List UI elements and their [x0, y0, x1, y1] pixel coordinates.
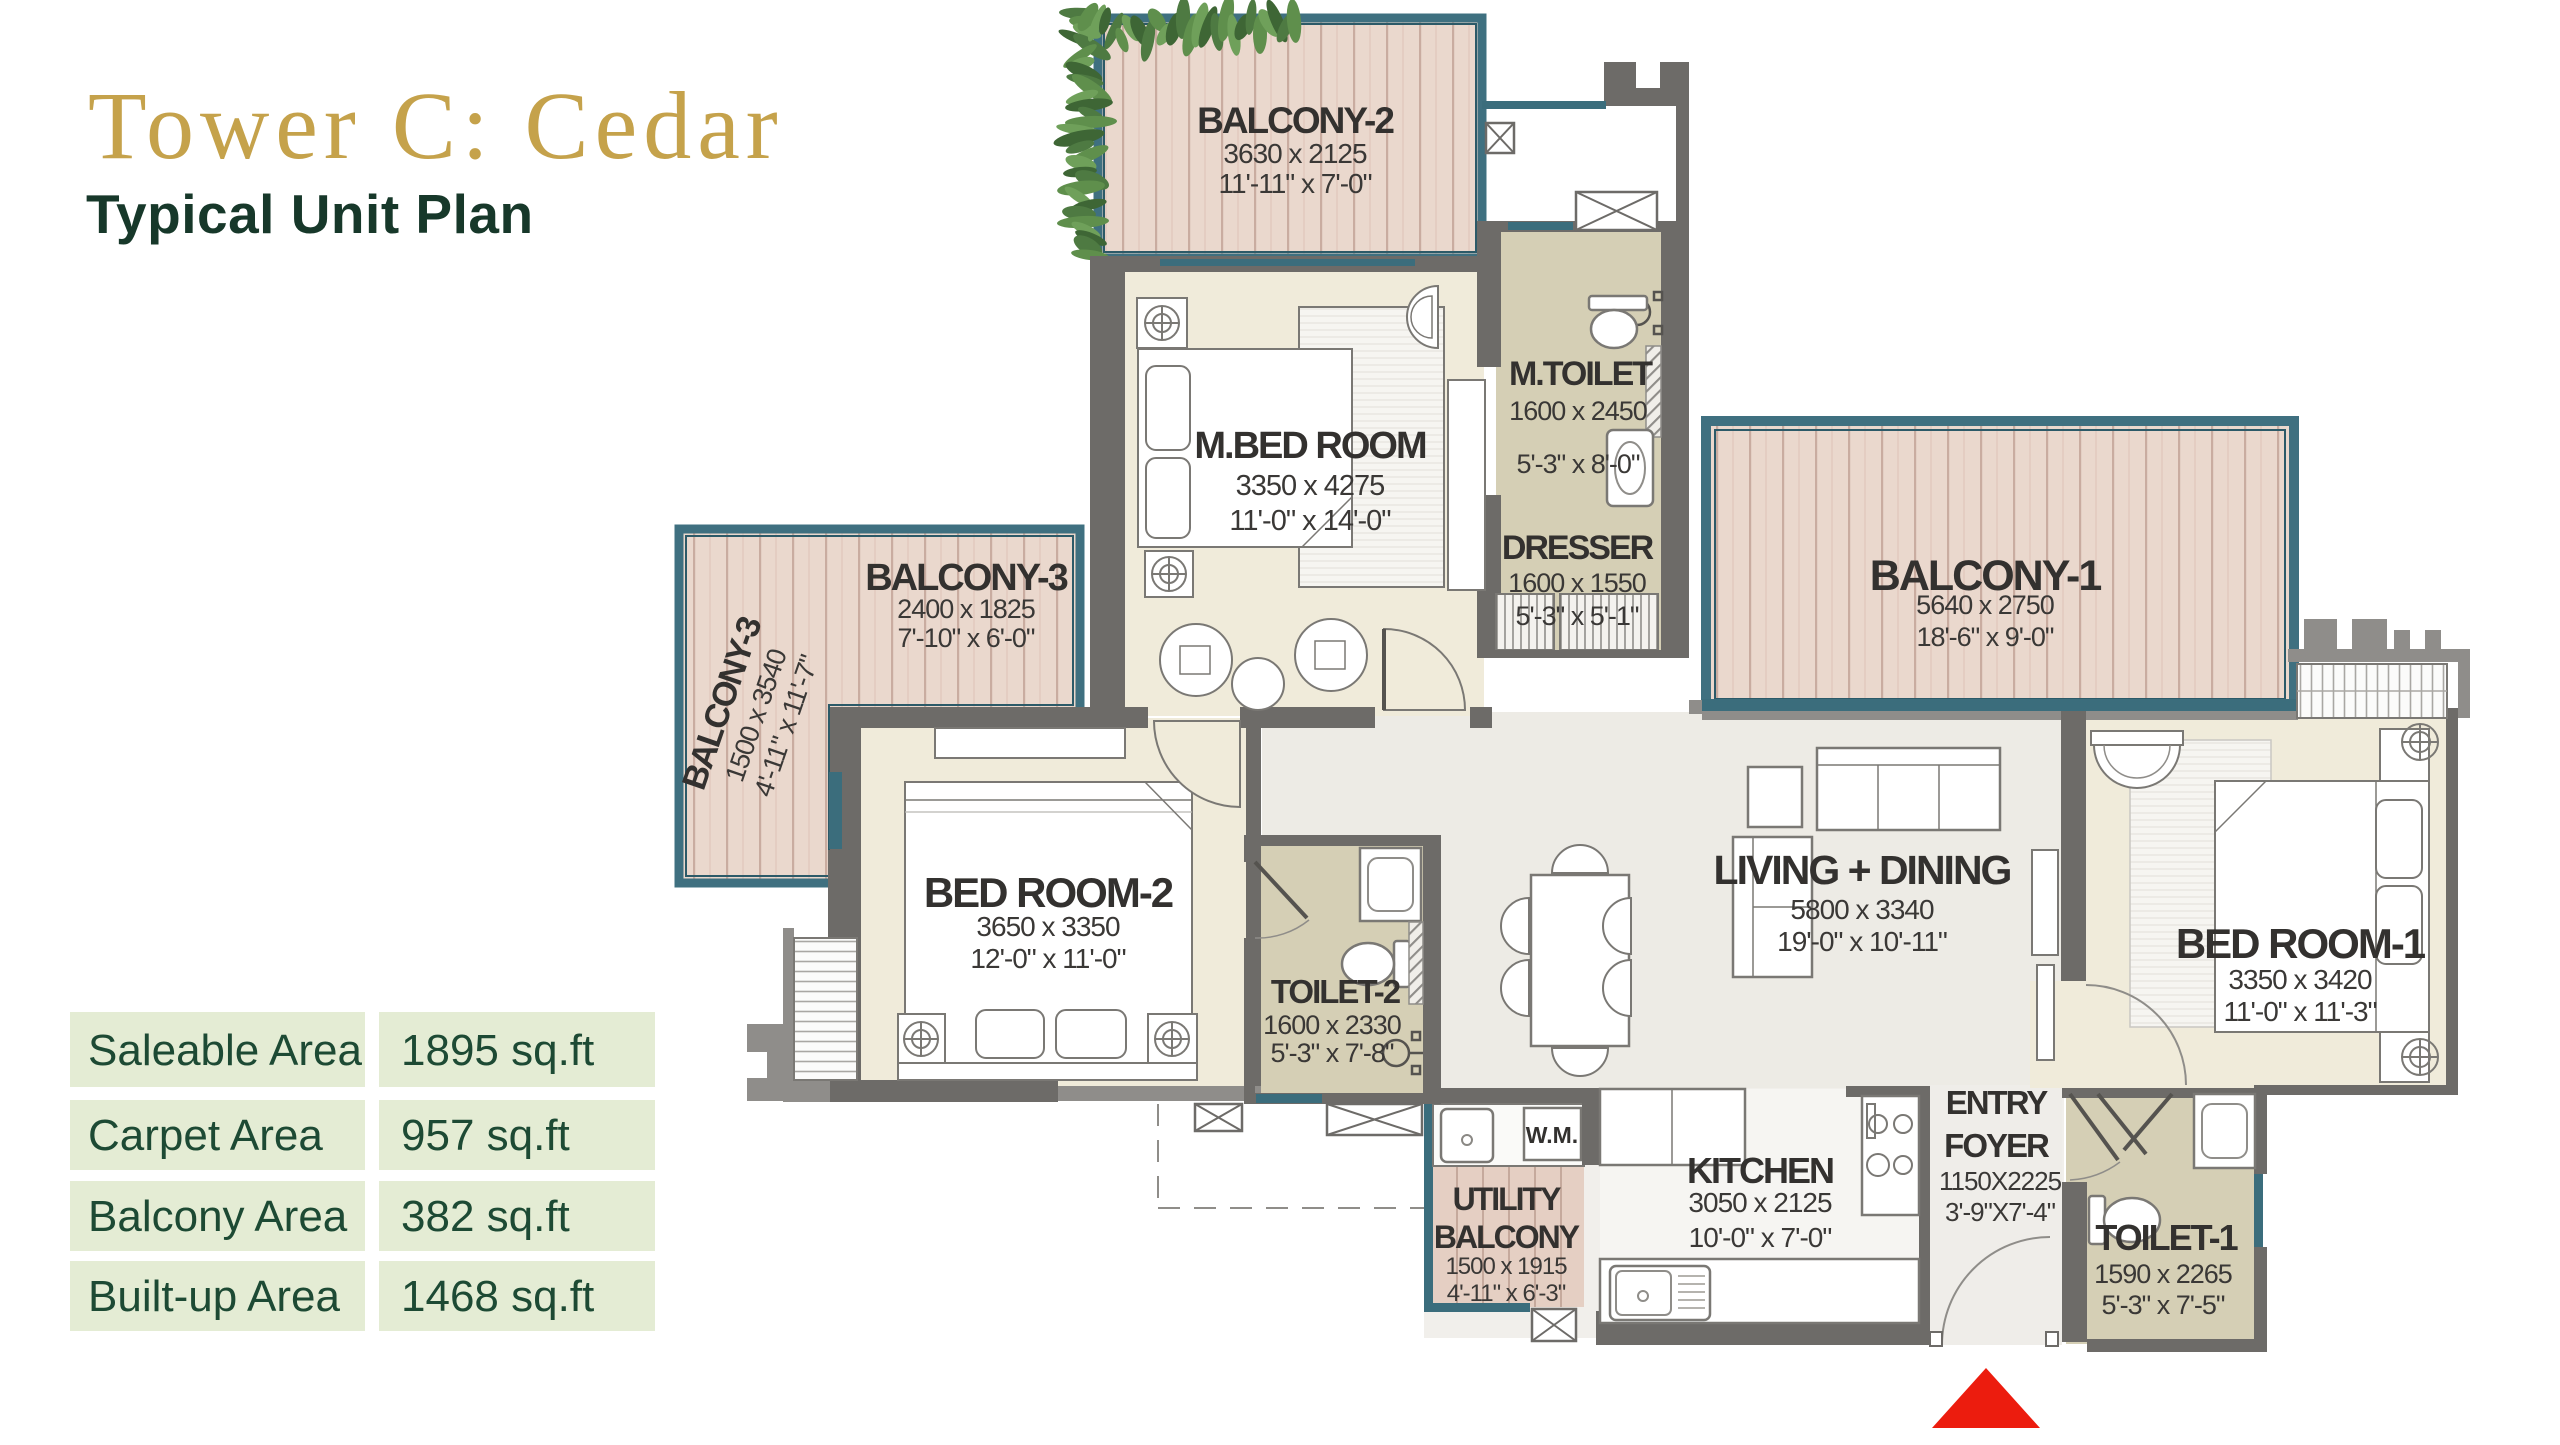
svg-text:LIVING + DINING: LIVING + DINING	[1714, 847, 2011, 893]
svg-text:4'-11" x 6'-3": 4'-11" x 6'-3"	[1447, 1280, 1566, 1307]
svg-text:1895 sq.ft: 1895 sq.ft	[401, 1026, 594, 1075]
svg-text:ENTRY: ENTRY	[1946, 1084, 2049, 1121]
svg-text:5640 x 2750: 5640 x 2750	[1916, 590, 2054, 620]
svg-text:Saleable Area: Saleable Area	[88, 1026, 363, 1075]
svg-text:1600 x 1550: 1600 x 1550	[1508, 568, 1646, 598]
svg-text:1150X2225: 1150X2225	[1939, 1166, 2062, 1196]
svg-text:DRESSER: DRESSER	[1502, 529, 1654, 567]
svg-text:5800 x 3340: 5800 x 3340	[1790, 894, 1934, 925]
svg-text:1500 x 1915: 1500 x 1915	[1445, 1253, 1567, 1280]
svg-text:1468 sq.ft: 1468 sq.ft	[401, 1272, 594, 1321]
svg-text:BED ROOM-1: BED ROOM-1	[2176, 920, 2426, 967]
svg-text:M.BED ROOM: M.BED ROOM	[1194, 425, 1426, 467]
svg-text:3350 x 3420: 3350 x 3420	[2228, 964, 2372, 995]
svg-text:5'-3" x 5'-1": 5'-3" x 5'-1"	[1515, 601, 1638, 631]
svg-text:Carpet Area: Carpet Area	[88, 1111, 323, 1160]
svg-text:5'-3" x 7'-8": 5'-3" x 7'-8"	[1270, 1038, 1393, 1068]
svg-text:BALCONY-3: BALCONY-3	[865, 557, 1067, 599]
svg-text:2400 x 1825: 2400 x 1825	[897, 594, 1035, 624]
svg-text:Typical Unit Plan: Typical Unit Plan	[86, 183, 534, 245]
svg-text:1600 x 2450: 1600 x 2450	[1509, 396, 1647, 426]
svg-text:5'-3" x 7'-5": 5'-3" x 7'-5"	[2101, 1290, 2224, 1320]
svg-text:3630 x 2125: 3630 x 2125	[1223, 138, 1367, 169]
svg-text:M.TOILET: M.TOILET	[1509, 355, 1653, 393]
svg-text:10'-0" x 7'-0": 10'-0" x 7'-0"	[1689, 1222, 1832, 1253]
svg-text:18'-6" x 9'-0": 18'-6" x 9'-0"	[1916, 622, 2053, 652]
svg-text:12'-0" x 11'-0": 12'-0" x 11'-0"	[970, 943, 1125, 974]
svg-text:957 sq.ft: 957 sq.ft	[401, 1111, 570, 1160]
svg-text:3350 x 4275: 3350 x 4275	[1236, 470, 1385, 502]
svg-text:3050 x 2125: 3050 x 2125	[1688, 1187, 1832, 1218]
svg-text:11'-0" x 11'-3": 11'-0" x 11'-3"	[2223, 996, 2376, 1027]
svg-text:BALCONY-2: BALCONY-2	[1197, 100, 1394, 141]
svg-text:11'-11" x 7'-0": 11'-11" x 7'-0"	[1218, 168, 1371, 199]
svg-text:BED ROOM-2: BED ROOM-2	[924, 869, 1173, 916]
svg-text:Tower C: Cedar: Tower C: Cedar	[88, 72, 784, 179]
svg-text:19'-0" x 10'-11": 19'-0" x 10'-11"	[1777, 926, 1947, 957]
svg-text:BALCONY: BALCONY	[1434, 1219, 1580, 1255]
svg-text:KITCHEN: KITCHEN	[1687, 1150, 1833, 1191]
svg-text:W.M.: W.M.	[1526, 1122, 1578, 1148]
svg-text:Balcony Area: Balcony Area	[88, 1192, 348, 1241]
svg-text:5'-3" x 8'-0": 5'-3" x 8'-0"	[1516, 449, 1639, 479]
svg-text:11'-0" x 14'-0": 11'-0" x 14'-0"	[1229, 505, 1391, 537]
svg-text:TOILET-2: TOILET-2	[1271, 973, 1401, 1010]
svg-text:Built-up Area: Built-up Area	[88, 1272, 340, 1321]
svg-text:3650 x 3350: 3650 x 3350	[976, 911, 1120, 942]
svg-text:3'-9"X7'-4": 3'-9"X7'-4"	[1945, 1197, 2056, 1227]
svg-text:TOILET-1: TOILET-1	[2095, 1217, 2238, 1258]
svg-text:FOYER: FOYER	[1944, 1127, 2050, 1164]
svg-text:382 sq.ft: 382 sq.ft	[401, 1192, 570, 1241]
svg-text:7'-10" x 6'-0": 7'-10" x 6'-0"	[897, 623, 1034, 653]
svg-text:1590 x 2265: 1590 x 2265	[2094, 1259, 2232, 1289]
svg-text:UTILITY: UTILITY	[1453, 1181, 1562, 1217]
svg-text:1600 x 2330: 1600 x 2330	[1263, 1010, 1401, 1040]
